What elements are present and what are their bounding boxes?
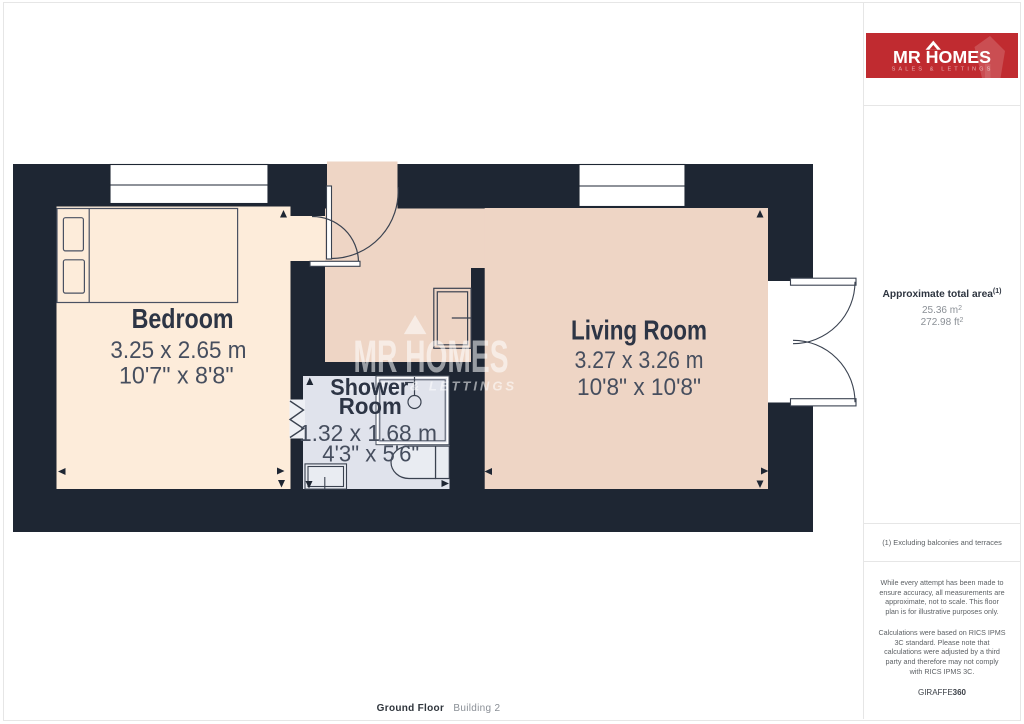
svg-text:10'8" x 10'8": 10'8" x 10'8": [577, 374, 701, 401]
svg-text:3.25 x 2.65 m: 3.25 x 2.65 m: [110, 337, 246, 364]
svg-text:Bedroom: Bedroom: [132, 303, 234, 334]
svg-text:Room: Room: [339, 393, 402, 419]
svg-text:Living Room: Living Room: [571, 315, 707, 346]
svg-text:SALES & LETTINGS: SALES & LETTINGS: [892, 67, 994, 73]
svg-text:4'3" x 5'6": 4'3" x 5'6": [322, 441, 419, 467]
svg-text:3.27 x 3.26 m: 3.27 x 3.26 m: [575, 347, 704, 374]
svg-text:10'7" x 8'8": 10'7" x 8'8": [119, 363, 234, 390]
svg-text:MR HOMES: MR HOMES: [893, 47, 991, 67]
